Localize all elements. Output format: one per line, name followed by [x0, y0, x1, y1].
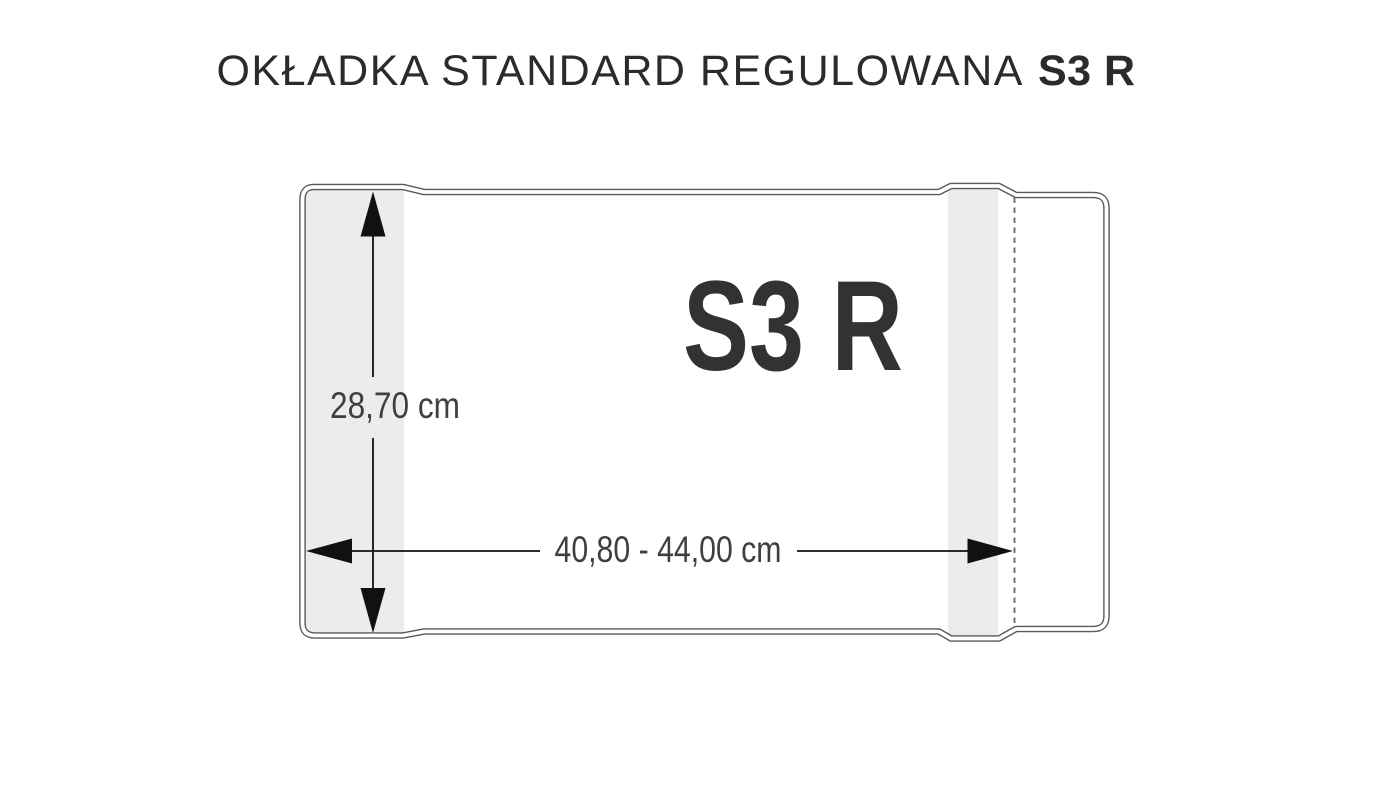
product-diagram-page: OKŁADKA STANDARD REGULOWANAS3 R 28,70 cm…	[0, 0, 1400, 788]
cover-size-code: S3 R	[683, 255, 903, 398]
width-value: 40,80 - 44,00 cm	[555, 529, 782, 570]
cover-dimension-diagram: 28,70 cm 40,80 - 44,00 cm S3 R	[0, 0, 1400, 788]
height-value: 28,70 cm	[330, 385, 460, 426]
right-flap-seam-band	[948, 189, 998, 637]
